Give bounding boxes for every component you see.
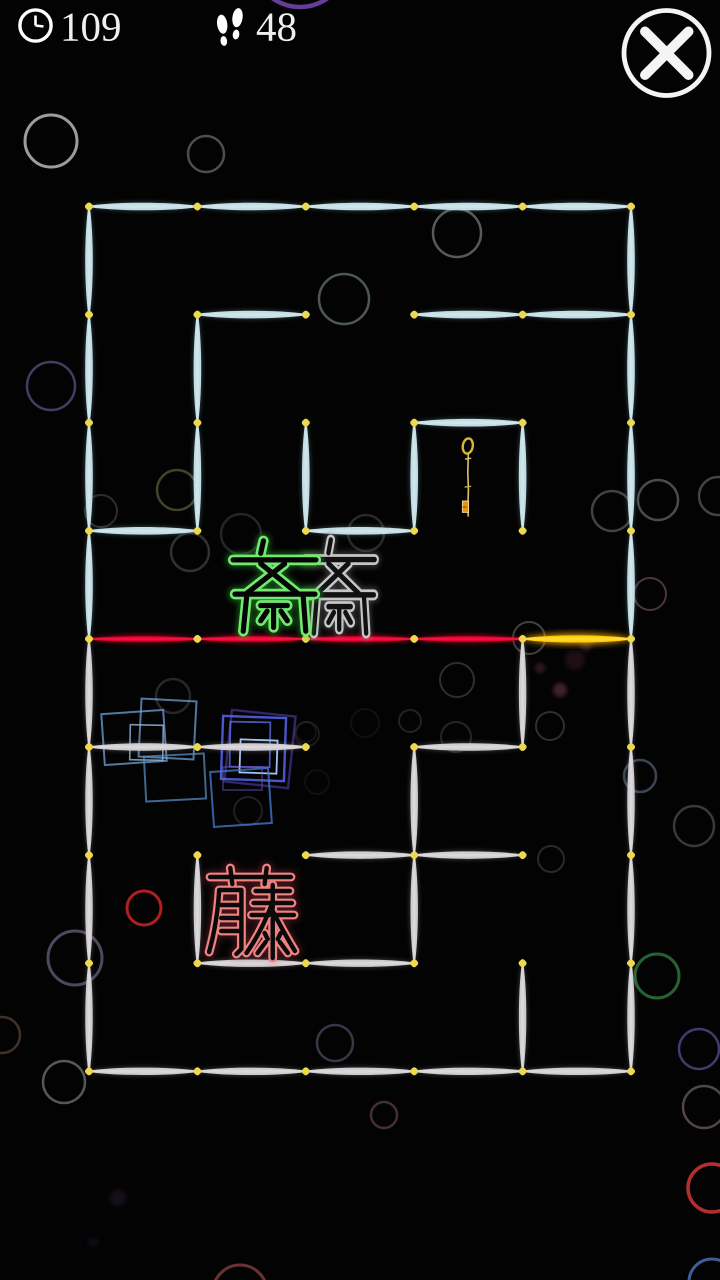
- svg-text:48: 48: [256, 4, 297, 50]
- svg-text:109: 109: [60, 4, 122, 50]
